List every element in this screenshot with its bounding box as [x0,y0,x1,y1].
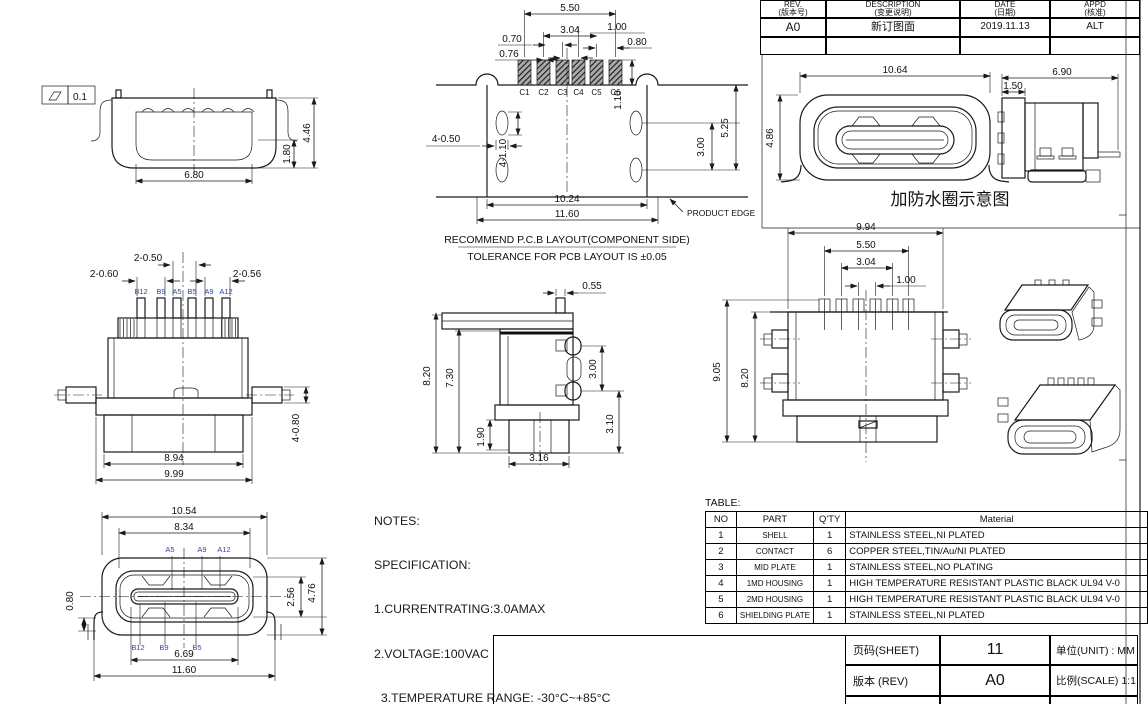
rev-header-appd: APPD(核准) [1050,0,1140,18]
engineering-drawing-sheet: 0.1 6.80 1.80 4.46 5.50 3.04 1.00 0.70 0… [0,0,1148,704]
dim-label: 1.90 [476,427,487,447]
dim-label: 0.55 [582,281,602,292]
table-row: 1 SHELL 1 STAINLESS STEEL,NI PLATED [706,528,1148,544]
rear-pins [137,298,230,318]
rev-header-date: DATE(日期) [960,0,1050,18]
pin-label: A9 [204,287,213,296]
dim-label: 8.20 [422,366,433,386]
pad-label: C5 [591,88,602,97]
rev-label: 版本 (REV) [845,665,940,696]
table-row: 5 2MD HOUSING 1 HIGH TEMPERATURE RESISTA… [706,592,1148,608]
pin-label: A12 [217,545,230,554]
dim-label: 0.80 [627,37,647,48]
unit-label: 单位(UNIT) : MM [1050,635,1138,665]
scale-label: 比例(SCALE) 1:1 [1050,665,1138,696]
col-no: NO [706,512,737,528]
pcb-tolerance-note: TOLERANCE FOR PCB LAYOUT IS ±0.05 [467,251,667,263]
dim-label: 1.10 [613,90,624,110]
dim-label: 11.60 [172,665,197,676]
rev-header-rev: REV.(版本号) [760,0,826,18]
dim-label: 4.46 [302,123,313,143]
projection-symbol-icon: ⊕ ▱ [1050,696,1138,704]
dim-label: 4.76 [307,583,318,603]
pin-label: B12 [134,287,147,296]
dim-label: 3.10 [605,414,616,434]
pin-label: B5 [187,287,196,296]
rev-header-description: DESCRIPTION(变更说明) [826,0,960,18]
pin-label: B9 [156,287,165,296]
pad-label: C4 [573,88,584,97]
rev-date: 2019.11.13 [960,18,1050,37]
dim-label: 10.54 [171,506,196,517]
dim-label: 0.76 [499,49,519,60]
table-row: 4 1MD HOUSING 1 HIGH TEMPERATURE RESISTA… [706,576,1148,592]
pin-label: A9 [197,545,206,554]
dim-label: 5.50 [856,240,876,251]
dim-label: 2-0.60 [90,269,119,280]
pcb-pads [518,60,622,85]
dim-label: 4-0.50 [432,134,461,145]
product-edge-label: PRODUCT EDGE [687,208,756,218]
dim-label: 6.80 [184,170,204,181]
dim-label: 8.20 [740,368,751,388]
dim-label: 4-1.10 [498,138,509,167]
revision-table: REV.(版本号) DESCRIPTION(变更说明) DATE(日期) APP… [760,0,1140,55]
isometric-views [998,280,1120,454]
dim-label: 3.16 [529,453,549,464]
pin-label: A5 [172,287,181,296]
waterproof-caption: 加防水圈示意图 [891,190,1010,209]
pad-label: C2 [538,88,549,97]
dim-label: 4.86 [765,128,776,148]
front-view: 0.1 6.80 1.80 4.46 [42,86,318,184]
dim-label: 6.69 [174,649,194,660]
dim-label: 0.70 [502,34,522,45]
dim-label: 9.94 [856,222,876,233]
dim-label: 10.24 [554,194,579,205]
col-qty: Q'TY [813,512,845,528]
dim-label: 0.80 [65,591,76,611]
parts-table-label: TABLE: [705,497,740,509]
notes-title: NOTES: [374,514,699,529]
col-material: Material [846,512,1148,528]
top-view: 9.94 5.50 3.04 1.00 9.05 8.20 [712,222,971,462]
dim-label: 11.60 [555,209,580,220]
parts-table: NO PART Q'TY Material 1 SHELL 1 STAINLES… [705,511,1148,624]
rev-value: A0 [940,665,1050,696]
date-label: 日期 (DATE) [845,696,940,704]
top-view-pads [819,299,914,312]
pin-label: B5 [192,643,201,652]
parts-table-header-row: NO PART Q'TY Material [706,512,1148,528]
table-row: 6 SHIELDING PLATE 1 STAINLESS STEEL,NI P… [706,608,1148,624]
notes-subtitle: SPECIFICATION: [374,558,699,573]
dim-label: 8.94 [164,453,184,464]
rev-description: 新订图面 [826,18,960,37]
dim-label: 10.64 [882,65,907,76]
pin-label: A12 [219,287,232,296]
waterproof-view: 10.64 4.86 1.50 6.90 加防水圈示意图 [765,65,1120,209]
dim-label: 9.05 [712,362,723,382]
side-view: 0.55 8.20 7.30 3.00 3.10 1.90 3.16 [422,281,624,468]
dim-label: 1.00 [896,275,916,286]
dim-label: 7.30 [445,368,456,388]
table-row: 3 MID PLATE 1 STAINLESS STEEL,NO PLATING [706,560,1148,576]
dim-label: 0.1 [73,92,87,103]
dim-label: 2.56 [286,587,297,607]
dim-label: 1.00 [607,22,627,33]
pcb-layout-view: 5.50 3.04 1.00 0.70 0.80 0.76 C1 C2 C3 C… [426,3,756,263]
dim-label: 3.00 [696,137,707,157]
table-row: 2 CONTACT 6 COPPER STEEL,TIN/Au/NI PLATE… [706,544,1148,560]
pad-label: C3 [557,88,568,97]
dim-label: 8.34 [174,522,194,533]
sheet-value: 11 [940,635,1050,665]
dim-label: 1.80 [282,144,293,164]
rev-appd: ALT [1050,18,1140,37]
pcb-layout-title: RECOMMEND P.C.B LAYOUT(COMPONENT SIDE) [444,234,690,246]
dim-label: 4-0.80 [291,413,302,442]
dim-label: 5.25 [720,118,731,138]
mating-view: 10.54 8.34 A5 A9 A12 0.80 2.56 4.76 B12 … [65,506,327,681]
pin-label: B12 [131,643,144,652]
title-block: 页码(SHEET) 11 单位(UNIT) : MM 版本 (REV) A0 比… [845,635,1138,704]
dim-label: 1.50 [1003,81,1023,92]
date-value: 2019.11.13 [940,696,1050,704]
rear-view: 2-0.50 2-0.60 2-0.56 B12 B9 A5 B5 A9 A12… [54,252,310,484]
pin-label: A5 [165,545,174,554]
dim-label: 3.04 [856,257,876,268]
pin-label: B9 [159,643,168,652]
sheet-label: 页码(SHEET) [845,635,940,665]
note-item: 1.CURRENTRATING:3.0AMAX [374,602,699,617]
dim-label: 3.00 [588,359,599,379]
dim-label: 9.99 [164,469,184,480]
flatness-icon [49,92,61,100]
dim-label: 2-0.56 [233,269,262,280]
dim-label: 3.04 [560,25,580,36]
dim-label: 6.90 [1052,67,1072,78]
title-block-empty-box [493,635,846,704]
rev-value: A0 [760,18,826,37]
dim-label: 2-0.50 [134,253,163,264]
dim-label: 5.50 [560,3,580,14]
col-part: PART [736,512,813,528]
pad-label: C1 [519,88,530,97]
